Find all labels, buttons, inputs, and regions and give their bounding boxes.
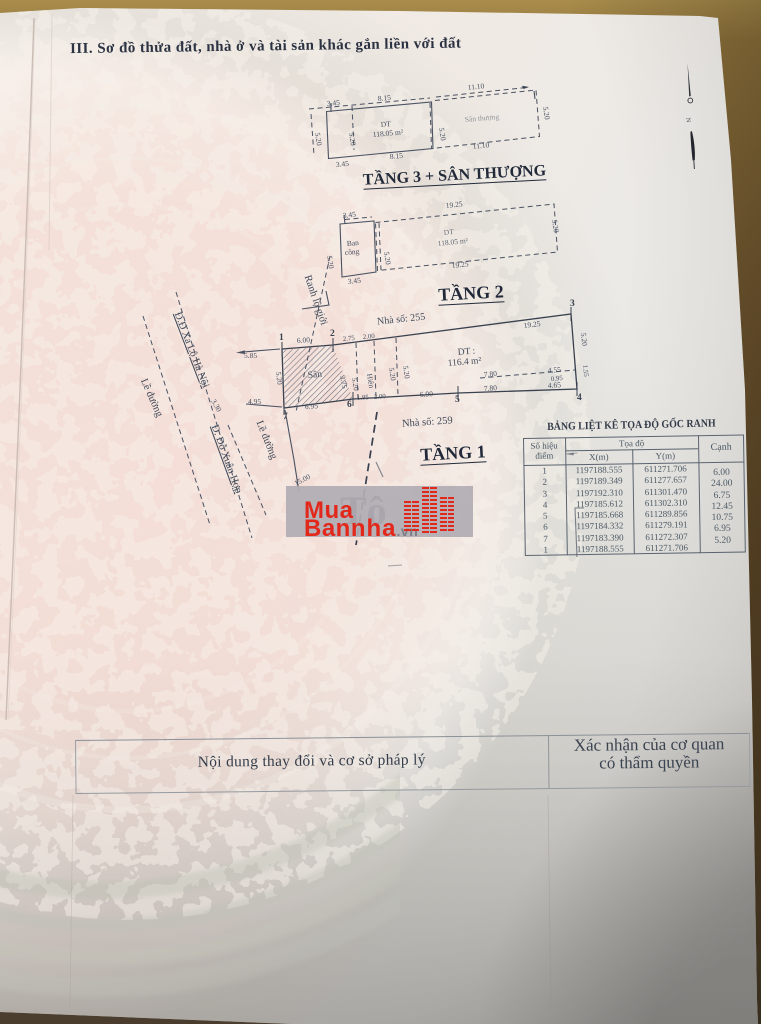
svg-text:6.95: 6.95: [305, 401, 319, 411]
svg-text:3.45: 3.45: [342, 210, 356, 220]
svg-text:công: công: [344, 247, 360, 257]
svg-text:Hiên: Hiên: [365, 373, 376, 389]
svg-text:Sân: Sân: [307, 370, 322, 381]
svg-text:Lề đường: Lề đường: [138, 377, 165, 419]
svg-text:19.25: 19.25: [445, 199, 463, 210]
svg-text:5.20: 5.20: [401, 365, 412, 380]
svg-text:8.15: 8.15: [377, 93, 391, 103]
svg-text:118.05 m²: 118.05 m²: [437, 236, 469, 248]
svg-text:6.00: 6.00: [297, 335, 311, 345]
svg-text:11.10: 11.10: [467, 81, 485, 92]
svg-text:5.20: 5.20: [313, 132, 324, 147]
svg-text:5.20: 5.20: [579, 332, 589, 346]
svg-text:5.20: 5.20: [387, 367, 398, 382]
svg-text:5.20: 5.20: [274, 371, 285, 385]
svg-text:5.20: 5.20: [541, 106, 552, 121]
svg-text:5.85: 5.85: [244, 351, 257, 360]
svg-text:5.20: 5.20: [347, 132, 358, 147]
svg-text:6: 6: [347, 400, 352, 410]
svg-text:6.90: 6.90: [420, 389, 434, 399]
svg-text:2: 2: [330, 329, 335, 339]
svg-text:5.20: 5.20: [550, 219, 561, 234]
svg-text:5.20: 5.20: [325, 255, 336, 270]
svg-text:Lề đường: Lề đường: [254, 419, 280, 462]
svg-text:2.00: 2.00: [363, 333, 376, 341]
svg-text:19.25: 19.25: [523, 319, 541, 330]
svg-text:8.15: 8.15: [389, 151, 403, 161]
svg-text:3.30: 3.30: [209, 398, 223, 414]
svg-text:3: 3: [570, 299, 575, 309]
svg-text:5.20: 5.20: [350, 377, 361, 392]
svg-text:Ranh lộ giới: Ranh lộ giới: [302, 274, 329, 327]
svg-text:5.20: 5.20: [382, 251, 393, 266]
svg-text:Sân thượng: Sân thượng: [464, 112, 499, 124]
svg-text:1: 1: [279, 333, 284, 343]
svg-text:5: 5: [455, 395, 460, 405]
svg-text:4.55: 4.55: [547, 365, 561, 375]
svg-text:3.45: 3.45: [335, 159, 349, 169]
svg-text:3.45: 3.45: [326, 98, 340, 108]
svg-text:116.4 m²: 116.4 m²: [447, 356, 482, 369]
svg-text:118.05 m²: 118.05 m²: [372, 127, 404, 139]
svg-text:Đ.Đ Xa Lộ Hà Nội: Đ.Đ Xa Lộ Hà Nội: [172, 311, 211, 390]
svg-text:5.20: 5.20: [437, 127, 448, 142]
svg-text:1.55: 1.55: [581, 364, 589, 377]
svg-text:1.85: 1.85: [357, 394, 370, 402]
svg-text:3.45: 3.45: [347, 276, 361, 286]
svg-text:DT: DT: [443, 227, 454, 237]
svg-text:4: 4: [577, 393, 582, 403]
svg-text:2.75: 2.75: [343, 335, 356, 343]
svg-text:7.80: 7.80: [484, 383, 498, 393]
svg-text:Đ. Đỗ Xuân Hợp: Đ. Đỗ Xuân Hợp: [209, 423, 244, 494]
svg-text:19.25: 19.25: [451, 259, 469, 270]
svg-text:4.95: 4.95: [248, 397, 261, 406]
svg-text:7.80: 7.80: [483, 369, 497, 379]
svg-text:N: N: [684, 117, 692, 123]
svg-text:2.00: 2.00: [374, 393, 387, 401]
svg-text:11.10: 11.10: [472, 140, 490, 151]
svg-text:4.65: 4.65: [548, 380, 562, 390]
